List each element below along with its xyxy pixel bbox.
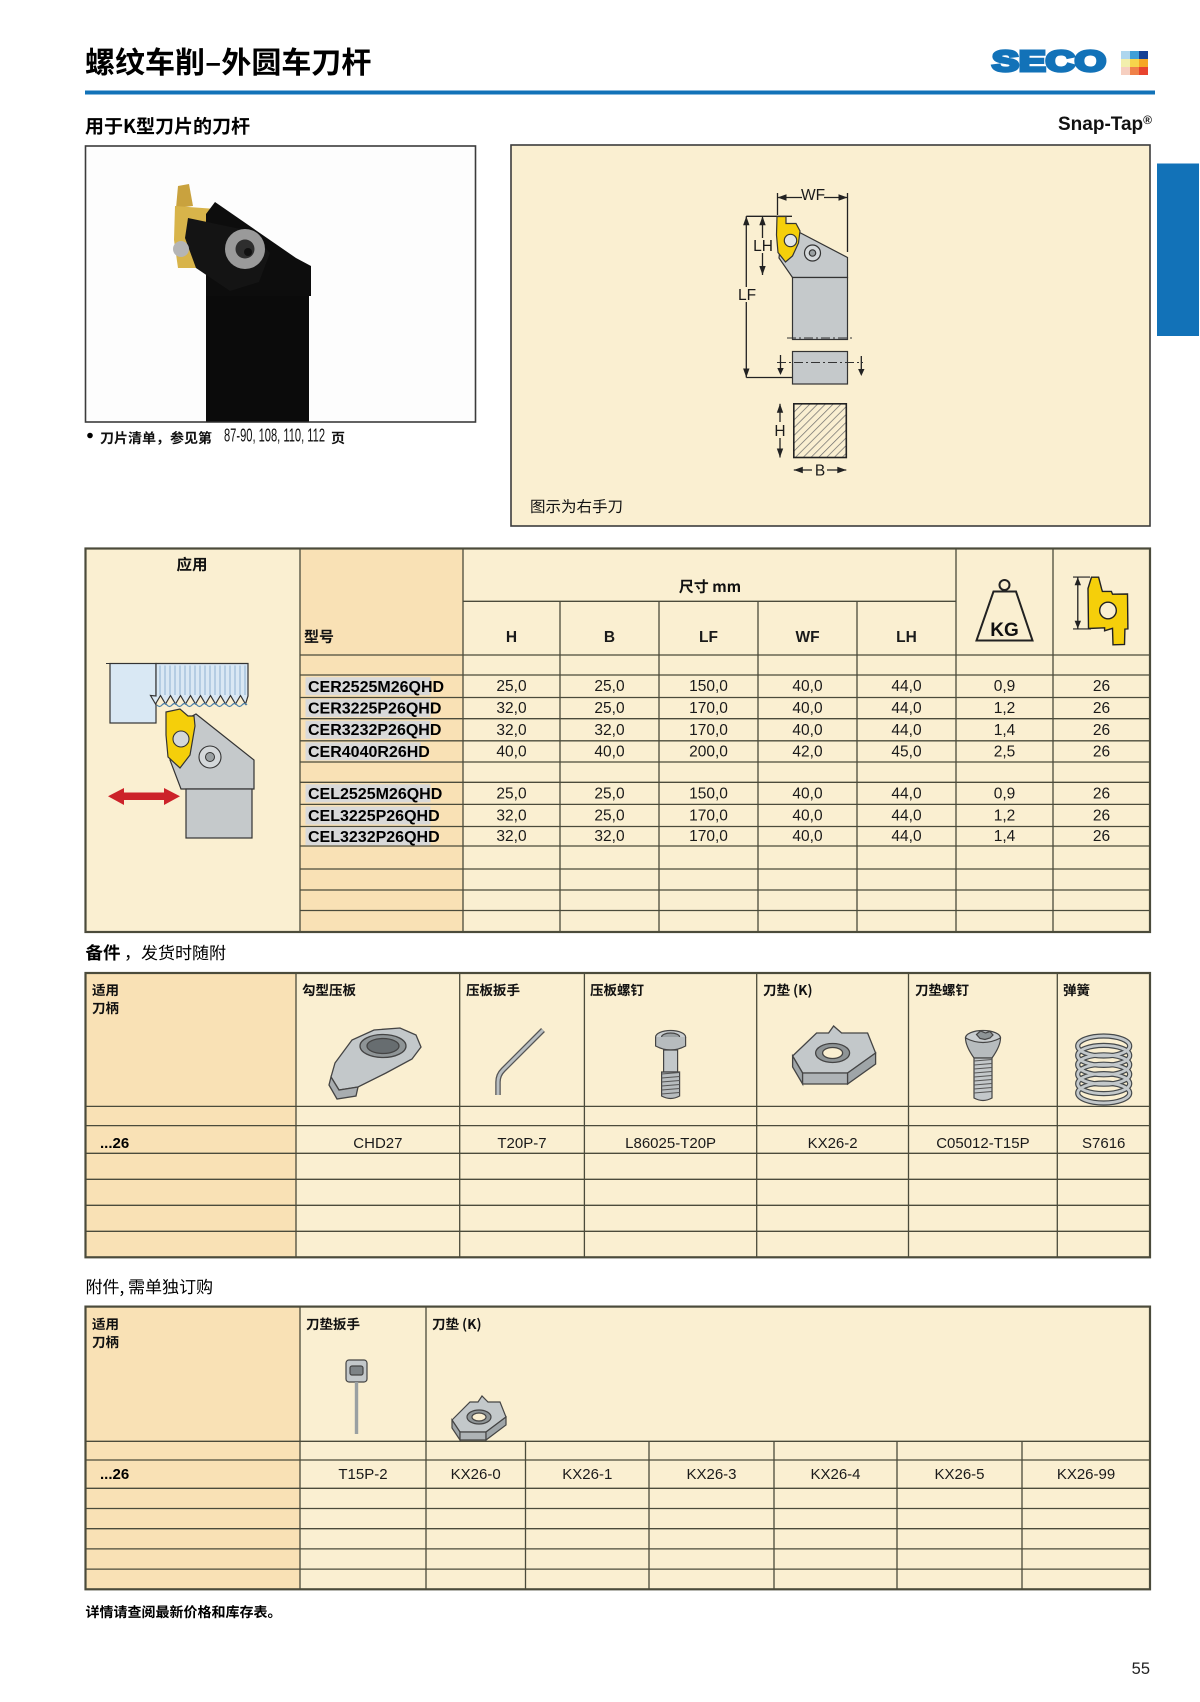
svg-text:170,0: 170,0 [689, 828, 728, 845]
svg-text:KX26-99: KX26-99 [1057, 1466, 1115, 1483]
svg-text:T15P-2: T15P-2 [338, 1466, 387, 1483]
svg-text:26: 26 [1093, 828, 1110, 845]
svg-text:32,0: 32,0 [496, 828, 527, 845]
svg-text:CHD27: CHD27 [353, 1135, 402, 1152]
svg-text:26: 26 [1093, 785, 1110, 802]
svg-text:25,0: 25,0 [594, 785, 625, 802]
svg-text:45,0: 45,0 [891, 743, 922, 760]
svg-text:44,0: 44,0 [891, 828, 922, 845]
svg-text:44,0: 44,0 [891, 678, 922, 695]
svg-text:0,9: 0,9 [994, 678, 1016, 695]
svg-text:KX26-3: KX26-3 [686, 1466, 736, 1483]
svg-text:44,0: 44,0 [891, 722, 922, 739]
svg-text:KX26-5: KX26-5 [934, 1466, 984, 1483]
svg-text:WF: WF [801, 187, 825, 204]
svg-text:44,0: 44,0 [891, 785, 922, 802]
svg-text:SECO: SECO [992, 46, 1106, 78]
svg-text:32,0: 32,0 [496, 808, 527, 825]
svg-text:CEL3232P26QHD: CEL3232P26QHD [308, 829, 440, 846]
svg-text:0,9: 0,9 [994, 785, 1016, 802]
svg-text:25,0: 25,0 [594, 808, 625, 825]
svg-text:25,0: 25,0 [594, 700, 625, 717]
svg-text:42,0: 42,0 [792, 743, 823, 760]
svg-text:40,0: 40,0 [496, 743, 527, 760]
svg-text:26: 26 [1093, 700, 1110, 717]
svg-text:LF: LF [738, 287, 756, 304]
svg-text:KX26-0: KX26-0 [451, 1466, 501, 1483]
svg-text:40,0: 40,0 [792, 828, 823, 845]
svg-text:H: H [774, 423, 785, 440]
svg-text:T20P-7: T20P-7 [497, 1135, 546, 1152]
svg-text:KG: KG [990, 620, 1019, 641]
svg-text:150,0: 150,0 [689, 785, 728, 802]
svg-text:KX26-4: KX26-4 [810, 1466, 860, 1483]
svg-text:44,0: 44,0 [891, 700, 922, 717]
svg-text:1,2: 1,2 [994, 808, 1016, 825]
svg-text:B: B [815, 463, 825, 480]
svg-text:KX26-2: KX26-2 [808, 1135, 858, 1152]
svg-text:44,0: 44,0 [891, 808, 922, 825]
svg-text:1,4: 1,4 [994, 722, 1016, 739]
svg-text:S7616: S7616 [1082, 1135, 1125, 1152]
svg-text:40,0: 40,0 [792, 700, 823, 717]
svg-text:26: 26 [1093, 722, 1110, 739]
svg-text:55: 55 [1132, 1660, 1150, 1678]
svg-text:Snap-Tap®: Snap-Tap® [1058, 113, 1152, 135]
svg-text:40,0: 40,0 [792, 808, 823, 825]
svg-text:B: B [604, 629, 615, 646]
svg-text:1,4: 1,4 [994, 828, 1016, 845]
svg-text:170,0: 170,0 [689, 700, 728, 717]
svg-text:...26: ...26 [100, 1466, 129, 1483]
svg-text:25,0: 25,0 [594, 678, 625, 695]
svg-text:CER3225P26QHD: CER3225P26QHD [308, 701, 441, 718]
svg-text:C05012-T15P: C05012-T15P [936, 1135, 1029, 1152]
svg-text:170,0: 170,0 [689, 808, 728, 825]
svg-text:L86025-T20P: L86025-T20P [625, 1135, 716, 1152]
svg-text:LF: LF [699, 629, 718, 646]
svg-text:2,5: 2,5 [994, 743, 1016, 760]
svg-text:25,0: 25,0 [496, 678, 527, 695]
svg-text:CEL2525M26QHD: CEL2525M26QHD [308, 786, 442, 803]
svg-text:87-90, 108, 110, 112: 87-90, 108, 110, 112 [224, 426, 325, 446]
svg-text:26: 26 [1093, 743, 1110, 760]
svg-text:40,0: 40,0 [594, 743, 625, 760]
svg-text:25,0: 25,0 [496, 785, 527, 802]
svg-text:32,0: 32,0 [496, 722, 527, 739]
svg-text:170,0: 170,0 [689, 722, 728, 739]
svg-text:CER4040R26HD: CER4040R26HD [308, 744, 430, 761]
svg-text:40,0: 40,0 [792, 785, 823, 802]
svg-text:26: 26 [1093, 678, 1110, 695]
svg-text:40,0: 40,0 [792, 722, 823, 739]
svg-text:WF: WF [795, 629, 819, 646]
svg-text:CER2525M26QHD: CER2525M26QHD [308, 679, 444, 696]
svg-text:26: 26 [1093, 808, 1110, 825]
svg-text:CER3232P26QHD: CER3232P26QHD [308, 722, 441, 739]
svg-text:KX26-1: KX26-1 [562, 1466, 612, 1483]
svg-text:150,0: 150,0 [689, 678, 728, 695]
svg-text:40,0: 40,0 [792, 678, 823, 695]
svg-text:H: H [506, 629, 517, 646]
svg-text:LH: LH [896, 629, 917, 646]
svg-text:CEL3225P26QHD: CEL3225P26QHD [308, 808, 440, 825]
svg-text:...26: ...26 [100, 1135, 129, 1152]
svg-text:LH: LH [753, 238, 773, 255]
svg-text:32,0: 32,0 [594, 722, 625, 739]
svg-text:1,2: 1,2 [994, 700, 1016, 717]
svg-text:32,0: 32,0 [496, 700, 527, 717]
svg-text:200,0: 200,0 [689, 743, 728, 760]
svg-text:32,0: 32,0 [594, 828, 625, 845]
